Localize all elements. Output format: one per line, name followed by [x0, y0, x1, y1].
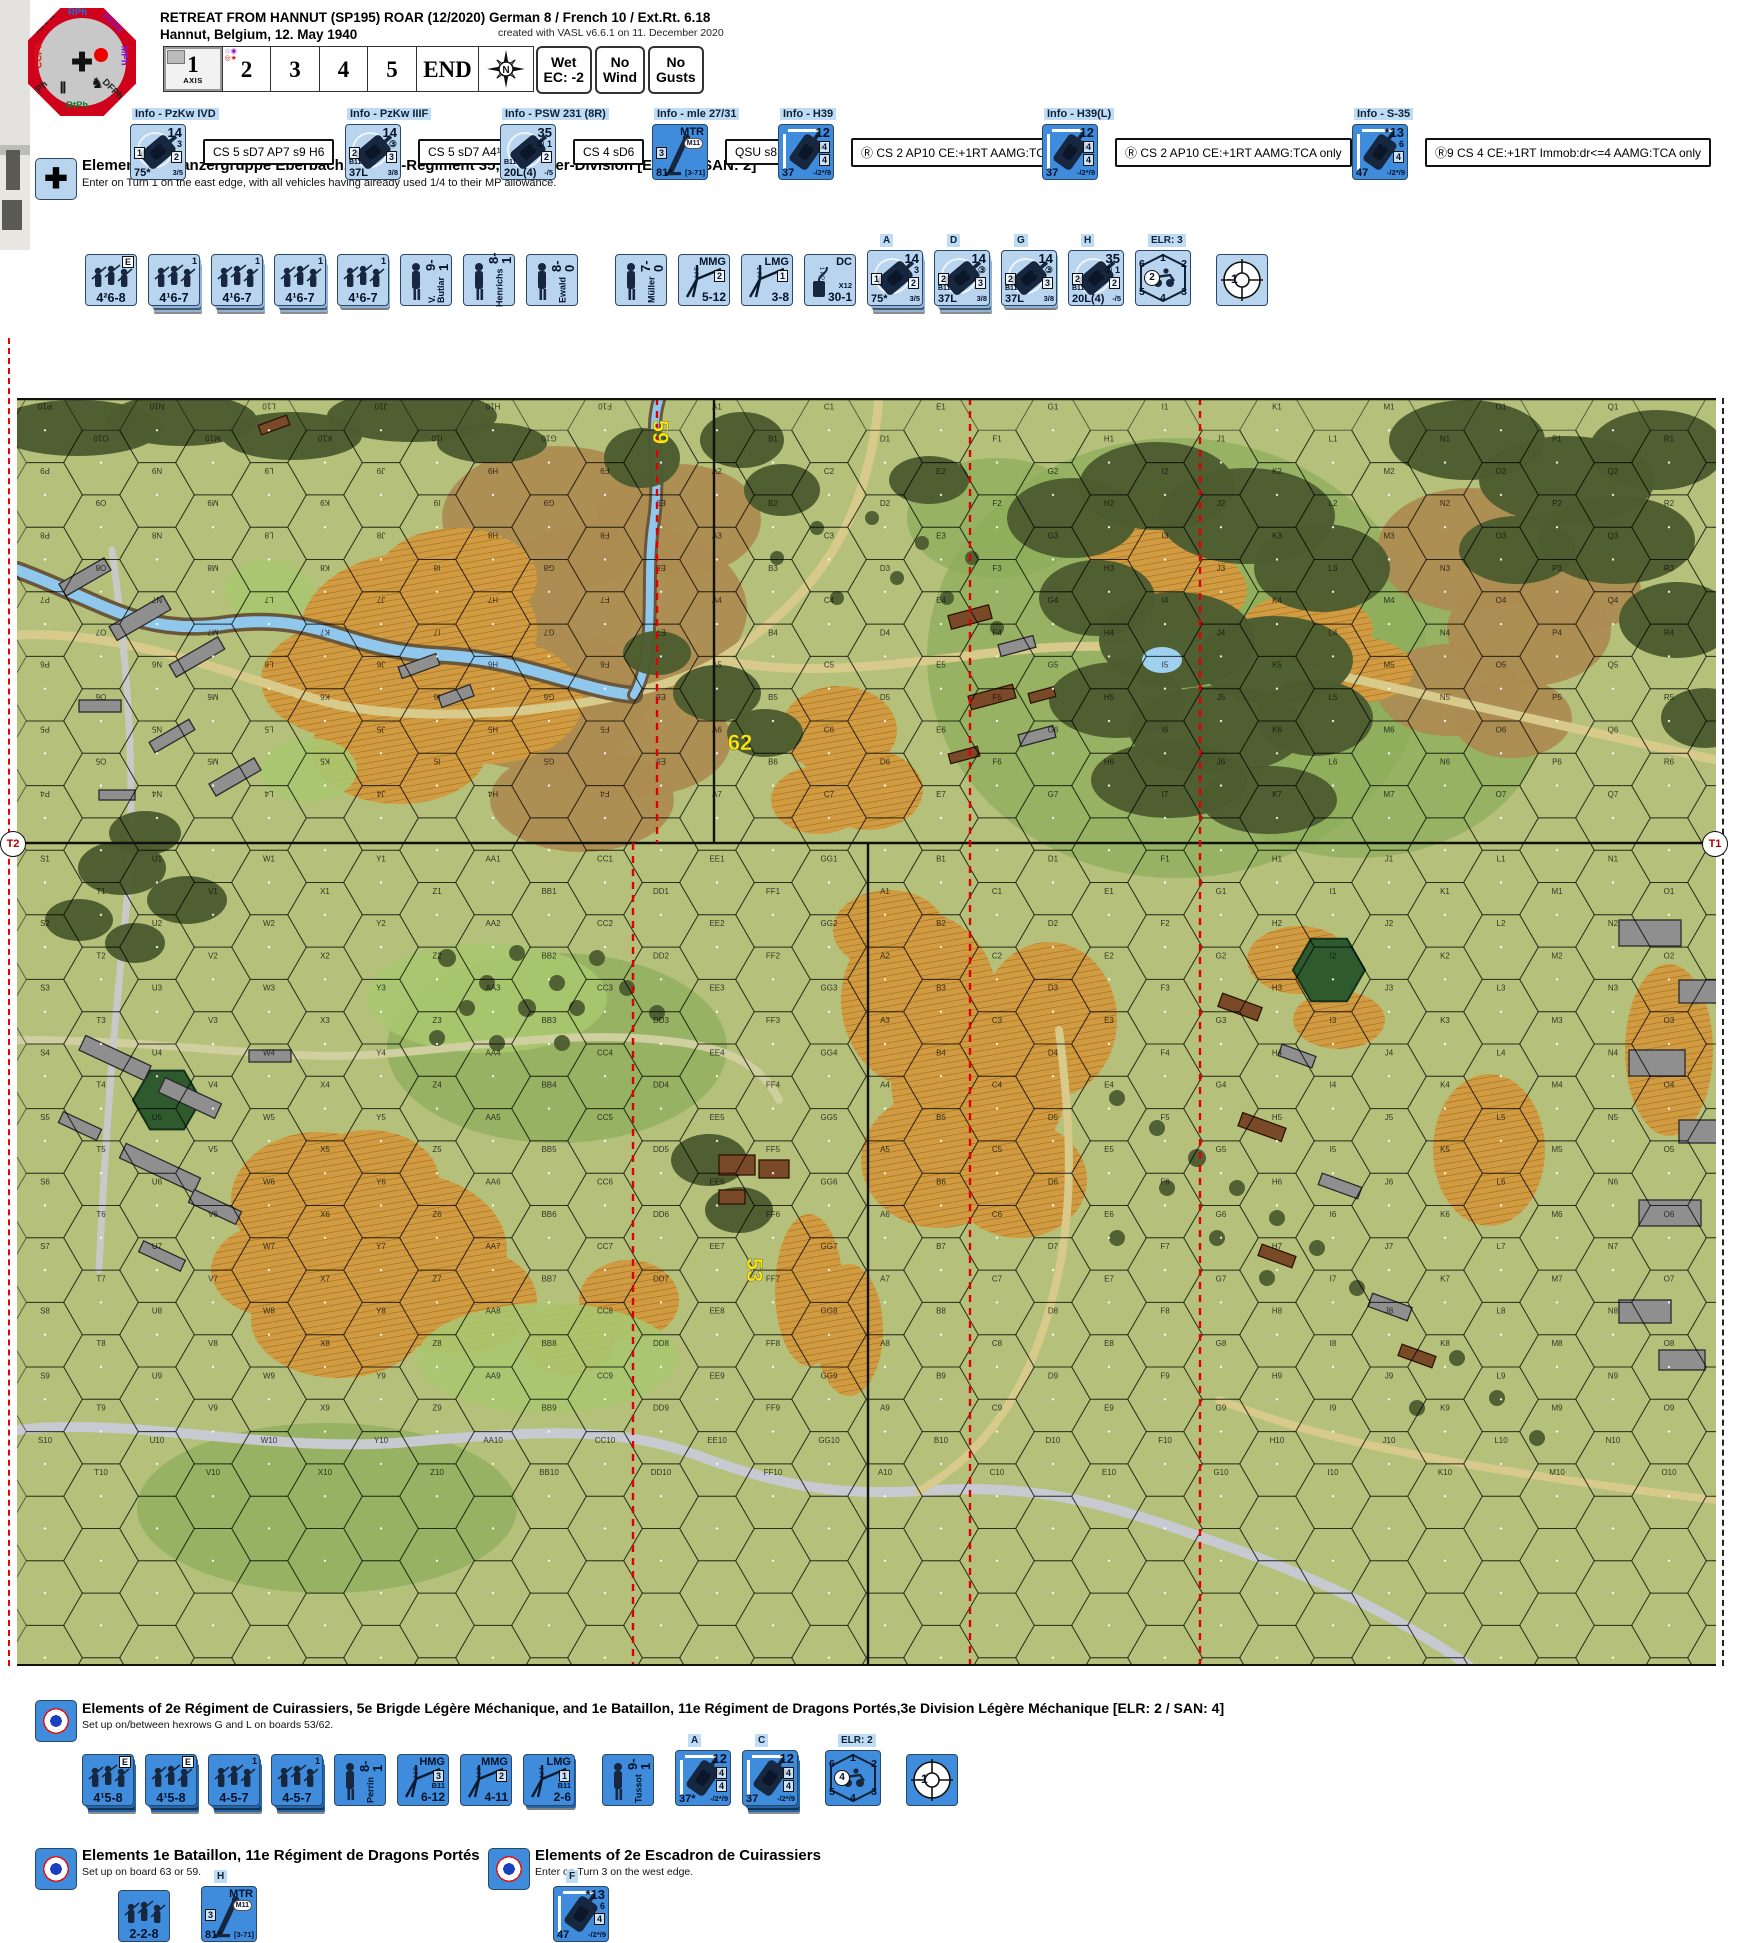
counter-mmg[interactable]: MMG23 PP5-12	[678, 254, 730, 306]
counter-d[interactable]: D 14③32B1137L3/8	[934, 250, 990, 306]
french-ob3-subtitle: Enter on Turn 3 on the west edge.	[535, 1866, 693, 1878]
svg-text:F8: F8	[1160, 1307, 1170, 1316]
svg-text:K5: K5	[1440, 1145, 1450, 1154]
svg-text:F6: F6	[600, 660, 610, 669]
afv-gun: 37	[782, 167, 794, 179]
afv-mg-box: 4	[1393, 151, 1404, 163]
svg-text:D4: D4	[880, 628, 891, 637]
afv-mg-box: 3	[386, 151, 397, 163]
svg-text:W3: W3	[263, 984, 276, 993]
svg-text:X4: X4	[320, 1081, 330, 1090]
svg-text:V6: V6	[208, 1210, 218, 1219]
svg-text:Y5: Y5	[376, 1113, 386, 1122]
svg-text:E4: E4	[936, 596, 946, 605]
info-card: Info - S-35 *136447-/2*/9Ⓡ9 CS 4 CE:+1RT…	[1352, 104, 1711, 180]
counter-lmg[interactable]: LMG1B111 PP2-6	[523, 1754, 575, 1806]
svg-text:E1: E1	[1104, 887, 1114, 896]
svg-text:K10: K10	[317, 434, 332, 443]
svg-text:X10: X10	[318, 1468, 333, 1477]
svg-text:G4: G4	[1048, 596, 1059, 605]
svg-text:S3: S3	[40, 984, 50, 993]
svg-text:J6: J6	[376, 660, 385, 669]
svg-text:AA9: AA9	[485, 1371, 501, 1380]
building	[719, 1190, 745, 1204]
counter-4-5-8[interactable]: 4¹5-8E	[82, 1754, 134, 1806]
svg-text:I7: I7	[1162, 790, 1169, 799]
counter-4-6-7[interactable]: 4¹6-71	[337, 254, 389, 306]
svg-text:Y10: Y10	[374, 1436, 389, 1445]
svg-text:R3: R3	[1664, 564, 1675, 573]
counter--1[interactable]: -1	[1216, 254, 1268, 306]
weather-chip-2[interactable]: NoGusts	[648, 46, 704, 94]
svg-text:L7: L7	[264, 595, 273, 604]
moto-number: 1	[1160, 252, 1166, 264]
squad-factors: 4¹5-8	[146, 1791, 196, 1805]
svg-text:X8: X8	[320, 1339, 330, 1348]
svg-text:U1: U1	[152, 855, 163, 864]
svg-text:N10: N10	[1606, 1436, 1621, 1445]
counter-mmg[interactable]: MMG24 PP4-11	[460, 1754, 512, 1806]
svg-text:F2: F2	[1160, 919, 1170, 928]
svg-text:C3: C3	[824, 532, 835, 541]
svg-text:O4: O4	[1664, 1081, 1675, 1090]
info-card-label: Info - H39(L)	[1044, 108, 1114, 120]
svg-text:GG9: GG9	[821, 1371, 838, 1380]
svg-text:V1: V1	[208, 887, 218, 896]
svg-text:S6: S6	[40, 1178, 50, 1187]
counter-a[interactable]: A 124437*-/2*/9	[675, 1750, 731, 1806]
svg-text:J1: J1	[1385, 855, 1394, 864]
svg-text:GG7: GG7	[821, 1242, 838, 1251]
sw-factors: 5-12	[702, 290, 726, 304]
svg-text:FF7: FF7	[766, 1274, 781, 1283]
turn-cell-5[interactable]: 5	[367, 46, 417, 92]
svg-text:H9: H9	[1272, 1371, 1283, 1380]
svg-text:V9: V9	[208, 1404, 218, 1413]
compass-rose[interactable]: N	[478, 46, 534, 92]
afv-mid-value: 6	[600, 1901, 605, 1911]
svg-text:X3: X3	[320, 1016, 330, 1025]
svg-text:DD7: DD7	[653, 1274, 670, 1283]
svg-text:H5: H5	[1104, 693, 1115, 702]
svg-text:A10: A10	[878, 1468, 893, 1477]
svg-text:B7: B7	[936, 1242, 946, 1251]
moto-circled-number: 4	[834, 1770, 850, 1786]
counter-henrichs[interactable]: Henrichs 8-1	[463, 254, 515, 306]
turn-cell-2[interactable]: ☆◉◎★2	[222, 46, 272, 92]
turn-cell-END[interactable]: END	[416, 46, 480, 92]
svg-text:F2: F2	[992, 499, 1002, 508]
counter-afv[interactable]: 124437-/2*/9	[778, 124, 834, 180]
svg-text:H3: H3	[1104, 564, 1115, 573]
svg-text:Y9: Y9	[376, 1371, 386, 1380]
svg-text:B10: B10	[934, 1436, 949, 1445]
phase-track-logo[interactable]: ✚ ♞ ⫼ RPhPFPhMPhDFPhRtPhAPhCCPhAFPh	[28, 8, 136, 116]
svg-text:E3: E3	[1104, 1016, 1114, 1025]
svg-text:U5: U5	[152, 1113, 163, 1122]
svg-text:H2: H2	[1272, 919, 1283, 928]
svg-text:DD1: DD1	[653, 887, 670, 896]
svg-text:H8: H8	[487, 531, 498, 540]
afv-gun: 20L(4)	[1072, 293, 1104, 305]
counter-perrin[interactable]: Perrin 8-1	[334, 1754, 386, 1806]
svg-text:O4: O4	[1496, 596, 1507, 605]
svg-text:D9: D9	[1048, 1371, 1059, 1380]
svg-text:U8: U8	[152, 1307, 163, 1316]
counter-f[interactable]: F *136447-/2*/9	[553, 1886, 609, 1942]
counter-2-2-8[interactable]: 2-2-8	[118, 1890, 170, 1942]
svg-text:O8: O8	[1664, 1339, 1675, 1348]
svg-text:N6: N6	[1440, 758, 1451, 767]
svg-text:Z7: Z7	[432, 1274, 442, 1283]
svg-text:M9: M9	[207, 498, 219, 507]
svg-text:M6: M6	[1551, 1210, 1563, 1219]
counter-g[interactable]: G 14③32B1137L3/8	[1001, 250, 1057, 306]
afv-mg-box: 4	[716, 1780, 727, 1792]
squad-elite-marker: E	[119, 1756, 131, 1768]
svg-text:I5: I5	[433, 757, 440, 766]
counter-lmg[interactable]: LMG11 PP3-8	[741, 254, 793, 306]
svg-text:Z4: Z4	[432, 1081, 442, 1090]
svg-text:J6: J6	[1217, 758, 1226, 767]
counter-c[interactable]: C 124437-/2*/9	[742, 1750, 798, 1806]
afv-mp: -/5	[544, 168, 553, 177]
moto-number: 4	[850, 1792, 856, 1804]
leader-name: V. Butlar 9-1	[424, 257, 450, 303]
phase-label-CCPh: CCPh	[33, 43, 44, 69]
svg-text:L4: L4	[1497, 1048, 1506, 1057]
svg-text:N9: N9	[1608, 1371, 1619, 1380]
weather-chip-1[interactable]: NoWind	[595, 46, 645, 94]
svg-text:EE5: EE5	[709, 1113, 725, 1122]
counter--1[interactable]: -1	[906, 1754, 958, 1806]
counter-4-6-8[interactable]: 4²6-8E	[85, 254, 137, 306]
counter-afv[interactable]: 35② 12B1120L(4)-/5	[500, 124, 556, 180]
svg-text:L9: L9	[1497, 1371, 1506, 1380]
french-ob2-subtitle: Set up on board 63 or 59.	[82, 1866, 201, 1878]
svg-text:C4: C4	[824, 596, 835, 605]
afv-target-size: 14	[1039, 251, 1053, 266]
svg-text:O5: O5	[1664, 1145, 1675, 1154]
svg-text:G9: G9	[1216, 1404, 1227, 1413]
svg-text:BB7: BB7	[541, 1274, 557, 1283]
svg-text:T1: T1	[96, 887, 106, 896]
svg-text:BB3: BB3	[541, 1016, 557, 1025]
info-card-note: CS 5 sD7 A4¹	[418, 139, 511, 165]
svg-text:E5: E5	[936, 661, 946, 670]
svg-text:F8: F8	[600, 531, 610, 540]
svg-text:B3: B3	[768, 564, 778, 573]
svg-text:AA3: AA3	[485, 984, 501, 993]
french-counter-row3: F *136447-/2*/9	[535, 1886, 620, 1942]
svg-text:G7: G7	[1216, 1274, 1227, 1283]
counter-location-label: H	[1081, 234, 1094, 247]
counter-h[interactable]: H 35② 122B1120L(4)-/5	[1068, 250, 1124, 306]
vasl-window: { "header": { "title_line1": "RETREAT FR…	[0, 0, 1738, 1943]
counter-ewald[interactable]: Ewald 8-0	[526, 254, 578, 306]
squad-elite-marker: E	[182, 1756, 194, 1768]
svg-text:C1: C1	[992, 887, 1003, 896]
svg-text:B4: B4	[936, 1048, 946, 1057]
svg-text:H5: H5	[1272, 1113, 1283, 1122]
afv-mp: -/2*/9	[588, 1930, 606, 1939]
svg-text:A7: A7	[880, 1274, 890, 1283]
counter-location-label: ELR: 2	[838, 1734, 876, 1747]
svg-text:F7: F7	[1160, 1242, 1170, 1251]
counter-afv[interactable]: 14③32B1137L3/8	[345, 124, 401, 180]
game-map[interactable]: P10P9P8P7P6P5P4S1S2S3S4S5S6S7S8S9S10O10O…	[17, 398, 1716, 1666]
counter-m-ller[interactable]: Müller 7-0	[615, 254, 667, 306]
svg-text:K6: K6	[1440, 1210, 1450, 1219]
svg-text:I7: I7	[433, 627, 440, 636]
german-cross-icon: ✚	[71, 49, 93, 75]
svg-text:AA6: AA6	[485, 1178, 501, 1187]
leader-name: Henrichs 8-1	[487, 257, 513, 303]
moto-number: 6	[1139, 258, 1145, 270]
svg-text:O7: O7	[1496, 790, 1507, 799]
svg-text:O7: O7	[95, 627, 106, 636]
counter-location-label: A	[880, 234, 893, 247]
svg-text:O9: O9	[1664, 1404, 1675, 1413]
afv-mp: -/5	[1112, 294, 1121, 303]
afv-breakdown: B11	[938, 285, 950, 292]
counter-location-label: G	[1014, 234, 1028, 247]
svg-text:K9: K9	[320, 498, 330, 507]
afv-mid-value: ③	[1045, 265, 1053, 276]
svg-text:C2: C2	[992, 951, 1003, 960]
svg-text:A1: A1	[880, 887, 890, 896]
svg-text:B1: B1	[768, 435, 778, 444]
svg-text:P5: P5	[1552, 693, 1562, 702]
svg-text:FF2: FF2	[766, 951, 781, 960]
svg-text:F6: F6	[1160, 1178, 1170, 1187]
svg-text:O5: O5	[1496, 661, 1507, 670]
svg-text:F9: F9	[1160, 1371, 1170, 1380]
map-east-edge-line	[1722, 398, 1724, 1666]
svg-text:P7: P7	[40, 595, 50, 604]
svg-text:O2: O2	[1496, 467, 1507, 476]
svg-text:C6: C6	[992, 1210, 1003, 1219]
counter-elr-2[interactable]: ELR: 2 6125434	[825, 1750, 881, 1806]
sw-type: LMG	[547, 1756, 571, 1768]
turn-cell-1[interactable]: 1AXIS	[163, 46, 223, 92]
counter-elr-3[interactable]: ELR: 3 6125432	[1135, 250, 1191, 306]
svg-text:O6: O6	[1496, 725, 1507, 734]
svg-text:AA7: AA7	[485, 1242, 501, 1251]
svg-text:H7: H7	[1272, 1242, 1283, 1251]
svg-text:N5: N5	[1608, 1113, 1619, 1122]
french-ob1-title: Elements of 2e Régiment de Cuirassiers, …	[82, 1700, 1224, 1716]
svg-text:K1: K1	[1272, 402, 1282, 411]
mtr-type: MTR	[680, 126, 704, 138]
afv-gun: 37	[1046, 167, 1058, 179]
svg-text:S2: S2	[40, 919, 50, 928]
svg-text:BB5: BB5	[541, 1145, 557, 1154]
afv-mp: 3/5	[173, 168, 183, 177]
turn-cell-3[interactable]: 3	[270, 46, 320, 92]
squad-elite-marker: E	[122, 256, 134, 268]
counter-afv[interactable]: *136447-/2*/9	[1352, 124, 1408, 180]
weather-chip-0[interactable]: WetEC: -2	[536, 46, 592, 94]
svg-text:K4: K4	[1272, 596, 1282, 605]
svg-text:N3: N3	[1440, 564, 1451, 573]
svg-text:CC4: CC4	[597, 1048, 614, 1057]
edge-marker-T2[interactable]: T2	[0, 831, 26, 857]
svg-text:J1: J1	[1217, 435, 1226, 444]
counter-tussot[interactable]: Tussot 9-1	[602, 1754, 654, 1806]
svg-text:L5: L5	[1497, 1113, 1506, 1122]
svg-text:N6: N6	[1608, 1178, 1619, 1187]
svg-text:D6: D6	[880, 758, 891, 767]
counter-4-6-7[interactable]: 4¹6-71	[211, 254, 263, 306]
counter-mtr[interactable]: H MTRM11381*[3-71]	[201, 1886, 257, 1942]
afv-breakdown: B11	[1072, 285, 1084, 292]
counter-4-5-8[interactable]: 4¹5-8E	[145, 1754, 197, 1806]
counter-4-6-7[interactable]: 4¹6-71	[148, 254, 200, 306]
counter-afv[interactable]: 124437-/2*/9	[1042, 124, 1098, 180]
turn-cell-4[interactable]: 4	[319, 46, 369, 92]
svg-text:I2: I2	[1162, 467, 1169, 476]
board-number: 62	[728, 730, 752, 755]
svg-text:W10: W10	[261, 1436, 278, 1445]
svg-text:G6: G6	[1216, 1210, 1227, 1219]
svg-text:M3: M3	[1551, 1016, 1563, 1025]
counter-4-5-7[interactable]: 4-5-71	[271, 1754, 323, 1806]
moto-number: 4	[1160, 292, 1166, 304]
counter-4-6-7[interactable]: 4¹6-71	[274, 254, 326, 306]
sw-type: HMG	[419, 1756, 445, 1768]
building	[1619, 1300, 1671, 1323]
svg-text:J10: J10	[374, 401, 387, 410]
leader-name: Müller 7-0	[639, 257, 665, 303]
svg-text:L1: L1	[1497, 855, 1506, 864]
svg-text:Y8: Y8	[376, 1307, 386, 1316]
svg-text:T2: T2	[96, 951, 106, 960]
svg-text:U6: U6	[152, 1178, 163, 1187]
squad-factors: 4-5-7	[209, 1791, 259, 1805]
svg-text:Q7: Q7	[1608, 790, 1619, 799]
svg-text:N6: N6	[151, 660, 162, 669]
svg-text:J5: J5	[1385, 1113, 1394, 1122]
svg-text:AA4: AA4	[485, 1048, 501, 1057]
svg-text:T9: T9	[96, 1404, 106, 1413]
counter-afv[interactable]: 1432175*3/5	[130, 124, 186, 180]
svg-text:T7: T7	[96, 1274, 106, 1283]
svg-text:F9: F9	[600, 466, 610, 475]
svg-text:Y4: Y4	[376, 1048, 386, 1057]
sw-note: B11	[558, 1781, 571, 1790]
svg-text:K5: K5	[320, 757, 330, 766]
svg-text:I10: I10	[1327, 1468, 1339, 1477]
squad-factors: 4-5-7	[272, 1791, 322, 1805]
svg-text:CC9: CC9	[597, 1371, 614, 1380]
svg-text:U3: U3	[152, 984, 163, 993]
afv-mp: -/2*/9	[777, 1794, 795, 1803]
counter-mtr[interactable]: MTRM11381*[3-71]	[652, 124, 708, 180]
svg-text:N4: N4	[1608, 1048, 1619, 1057]
afv-target-size: 12	[780, 1751, 794, 1766]
svg-text:I4: I4	[1330, 1081, 1337, 1090]
svg-text:K8: K8	[1440, 1339, 1450, 1348]
svg-text:J4: J4	[1385, 1048, 1394, 1057]
afv-gun: 37	[746, 1793, 758, 1805]
turn-marker-thumb	[167, 50, 185, 64]
counter-4-5-7[interactable]: 4-5-71	[208, 1754, 260, 1806]
svg-text:Y7: Y7	[376, 1242, 386, 1251]
svg-text:O1: O1	[1496, 402, 1507, 411]
edge-marker-T1[interactable]: T1	[1702, 831, 1728, 857]
svg-text:C5: C5	[992, 1145, 1003, 1154]
svg-text:G1: G1	[1048, 402, 1059, 411]
svg-text:H4: H4	[487, 789, 498, 798]
svg-text:A9: A9	[880, 1404, 890, 1413]
sw-box-number: 1	[777, 270, 788, 282]
svg-text:P1: P1	[1552, 435, 1562, 444]
svg-text:I6: I6	[1162, 725, 1169, 734]
hex-map-svg[interactable]: P10P9P8P7P6P5P4S1S2S3S4S5S6S7S8S9S10O10O…	[17, 398, 1716, 1666]
svg-text:BB1: BB1	[541, 887, 557, 896]
svg-text:GG10: GG10	[818, 1436, 840, 1445]
svg-text:I8: I8	[1330, 1339, 1337, 1348]
svg-text:V7: V7	[208, 1274, 218, 1283]
svg-text:L1: L1	[1329, 435, 1338, 444]
svg-text:E4: E4	[1104, 1081, 1114, 1090]
svg-text:I5: I5	[1162, 661, 1169, 670]
svg-text:L9: L9	[264, 466, 273, 475]
svg-text:M1: M1	[1551, 887, 1563, 896]
svg-text:D2: D2	[1048, 919, 1059, 928]
svg-text:H10: H10	[485, 401, 500, 410]
svg-text:E8: E8	[1104, 1339, 1114, 1348]
afv-target-size: 14	[383, 125, 397, 140]
svg-text:J8: J8	[376, 531, 385, 540]
svg-text:X1: X1	[320, 887, 330, 896]
svg-text:U10: U10	[150, 1436, 165, 1445]
svg-text:I3: I3	[1330, 1016, 1337, 1025]
afv-gun: 47	[1356, 167, 1368, 179]
svg-text:J10: J10	[1383, 1436, 1396, 1445]
counter-dc[interactable]: DCX121 PP30-1	[804, 254, 856, 306]
afv-mg-box: 2	[908, 277, 919, 289]
svg-text:R4: R4	[1664, 628, 1675, 637]
svg-text:CC8: CC8	[597, 1307, 614, 1316]
moto-number: 6	[829, 1758, 835, 1770]
svg-text:P2: P2	[1552, 499, 1562, 508]
afv-mp: 3/8	[977, 294, 987, 303]
afv-target-size: 12	[713, 1751, 727, 1766]
svg-text:Q1: Q1	[1608, 402, 1619, 411]
svg-text:Y1: Y1	[376, 855, 386, 864]
sw-factors: 2-6	[554, 1790, 571, 1804]
phase-label-RPh: RPh	[68, 7, 87, 18]
svg-text:D8: D8	[1048, 1307, 1059, 1316]
sw-box-number: 2	[714, 270, 725, 282]
counter-hmg[interactable]: HMG3B115 PP6-12	[397, 1754, 449, 1806]
svg-text:R6: R6	[1664, 758, 1675, 767]
svg-text:A2: A2	[880, 951, 890, 960]
svg-text:F4: F4	[1160, 1048, 1170, 1057]
svg-text:L2: L2	[1497, 919, 1506, 928]
svg-text:E6: E6	[936, 725, 946, 734]
svg-text:FF5: FF5	[766, 1145, 781, 1154]
afv-mg-box: 4	[819, 141, 830, 153]
afv-left-box: 2	[349, 147, 360, 159]
svg-text:E10: E10	[1102, 1468, 1117, 1477]
counter-a[interactable]: A 1432175*3/5	[867, 250, 923, 306]
counter-v-butlar[interactable]: V. Butlar 9-1	[400, 254, 452, 306]
svg-text:GG4: GG4	[821, 1048, 838, 1057]
svg-text:J5: J5	[376, 724, 385, 733]
